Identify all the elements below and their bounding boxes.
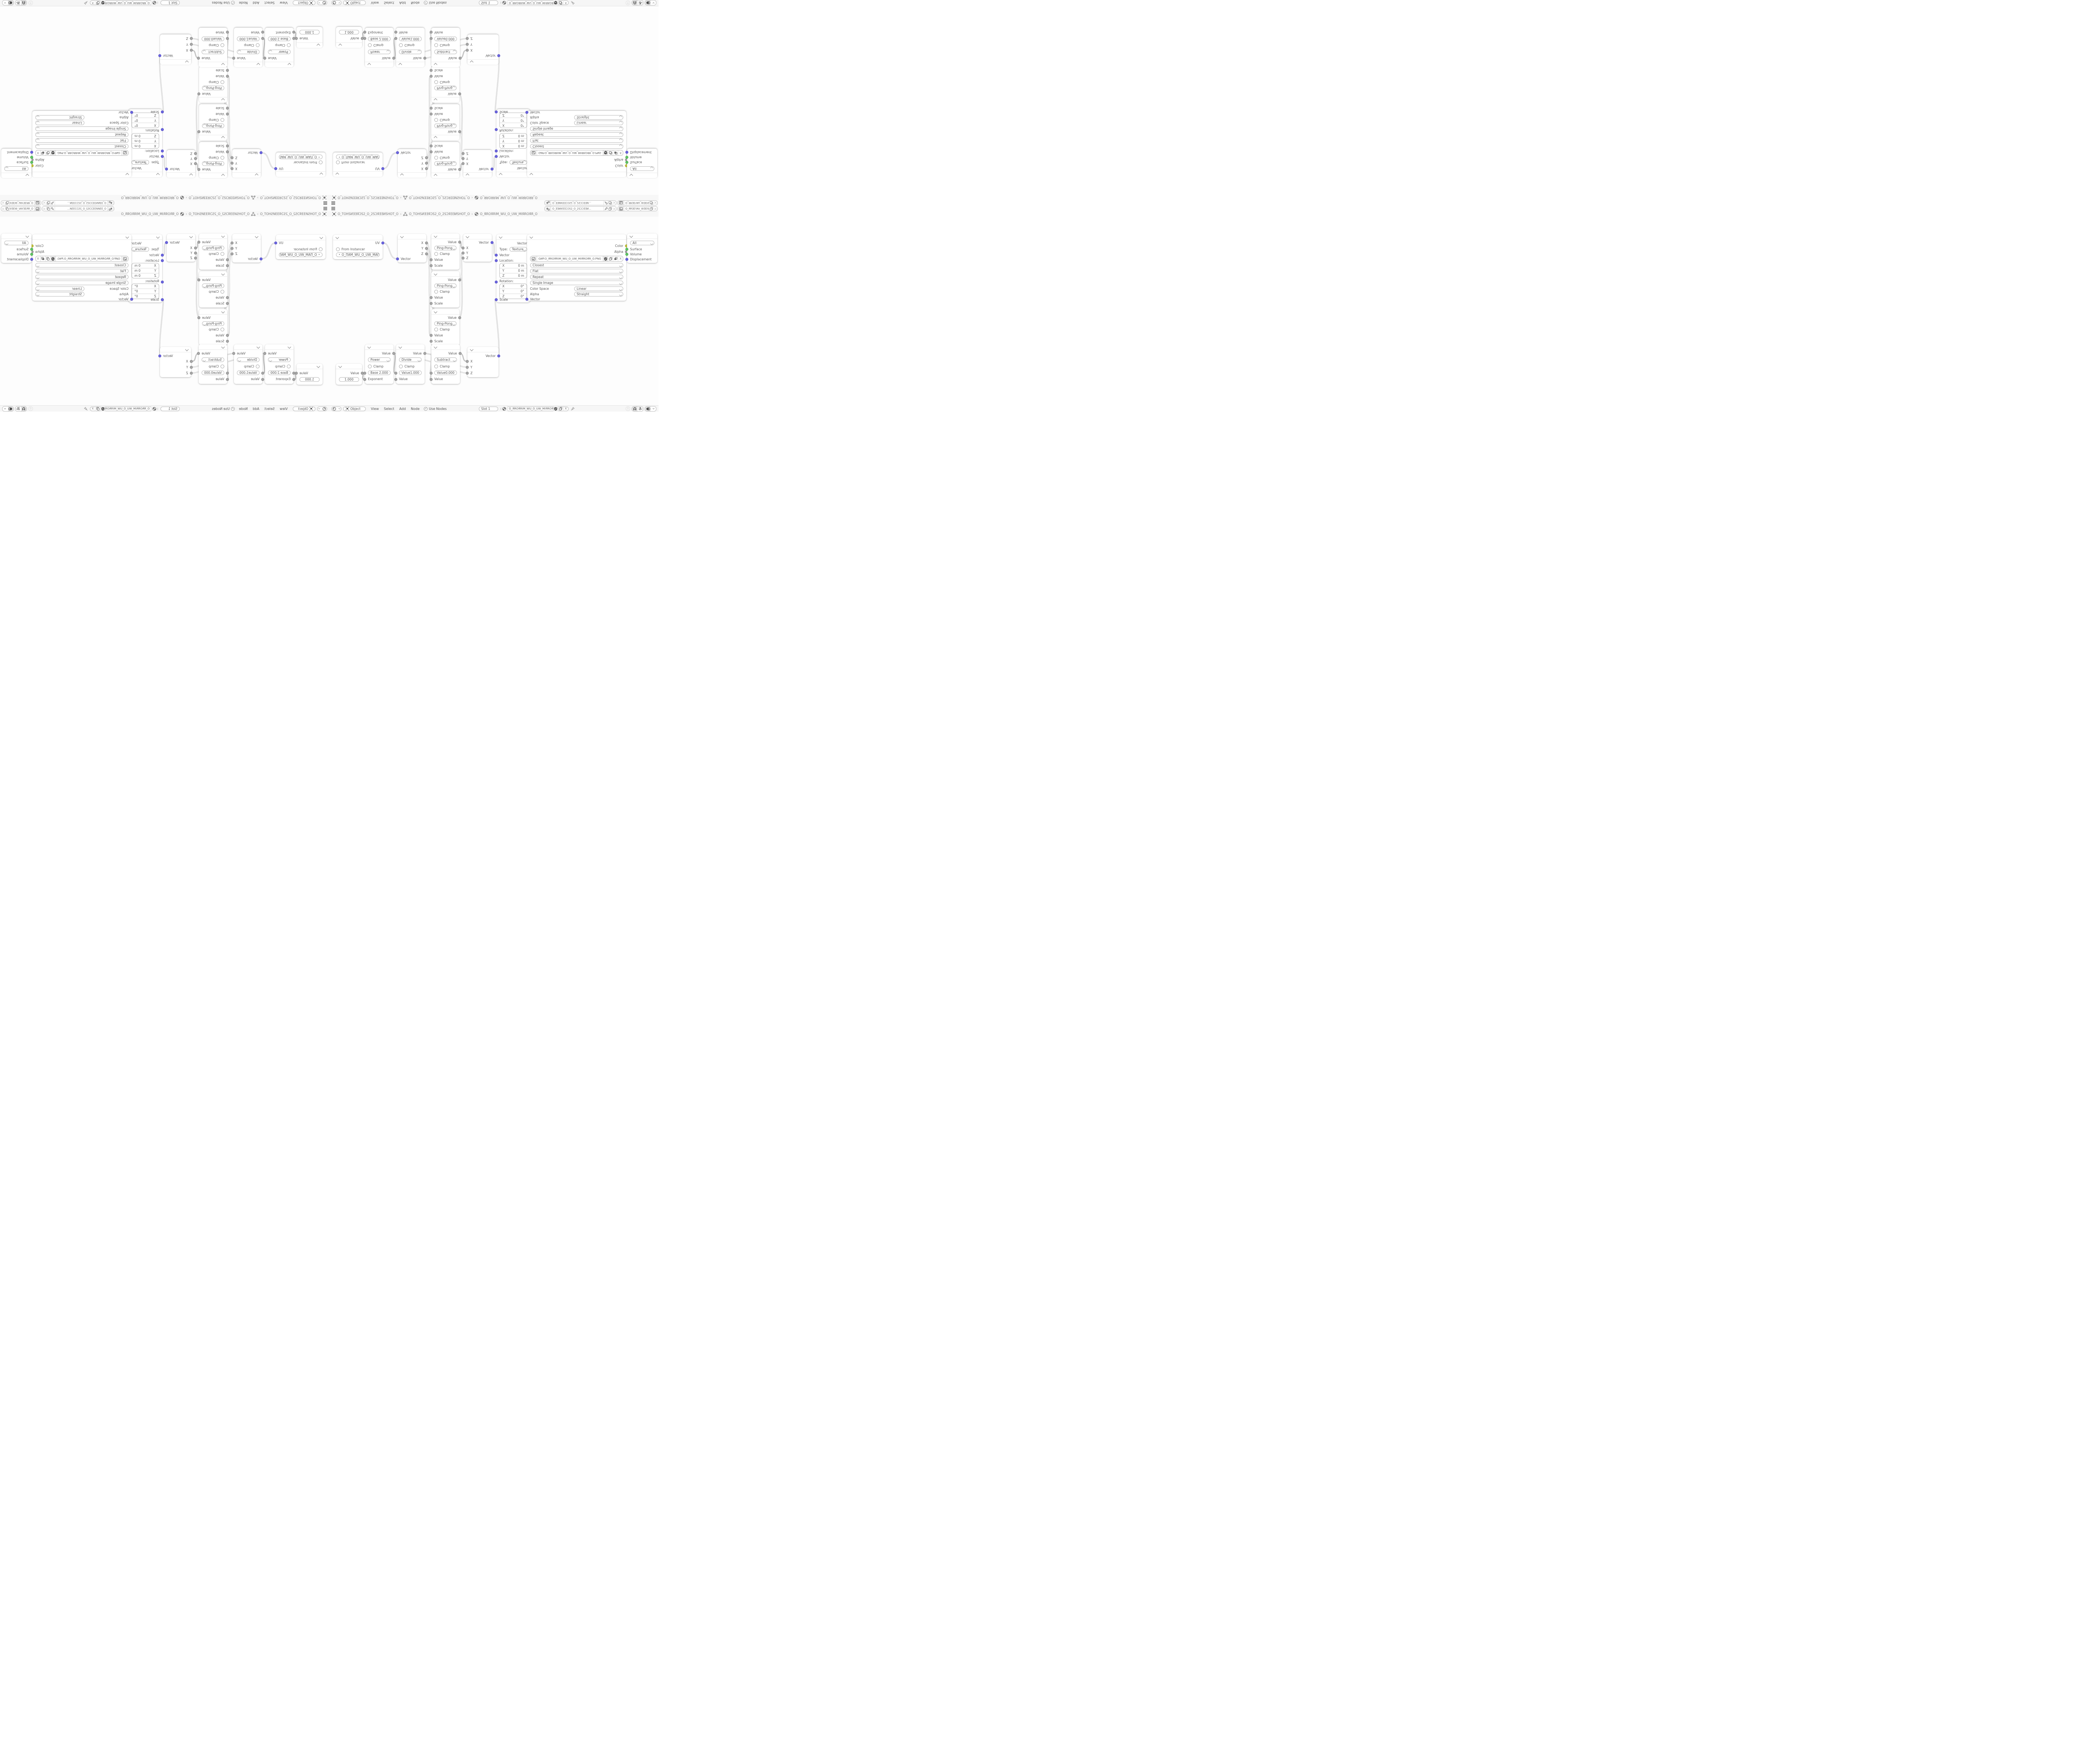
- view-layer-selector[interactable]: O_ЯRƎEYAV_WƎEIW_O_WIƎEW_VAYƎER_O: [1, 200, 41, 205]
- use-nodes-toggle[interactable]: ✓Use Nodes: [210, 1, 236, 5]
- vector-output-socket[interactable]: [158, 354, 161, 357]
- menu-select[interactable]: Select: [381, 407, 397, 411]
- operation-dropdown[interactable]: Power: [368, 50, 391, 54]
- menu-icon[interactable]: [331, 201, 336, 205]
- value-output-socket[interactable]: [263, 352, 266, 355]
- gizmo-arrow-icon[interactable]: [625, 406, 630, 411]
- image-icon[interactable]: [618, 201, 624, 205]
- base-input-socket[interactable]: [292, 372, 295, 375]
- vector-input-socket[interactable]: [161, 254, 164, 257]
- node-collapse-header[interactable]: [199, 234, 227, 239]
- location-fields[interactable]: X0 m Y0 m Z0 m: [131, 263, 159, 278]
- image-browse-icon[interactable]: [121, 150, 128, 155]
- image-texture-node[interactable]: Color Alpha GИP.O_ЯROЯRIM_WU_O_UW_MIЯROЯ…: [527, 111, 626, 177]
- node-canvas[interactable]: UV From Instancer •O_ПAM_WU_O_UW_MAП_OX …: [0, 6, 329, 195]
- location-input-socket[interactable]: [161, 259, 164, 262]
- header-image-datablock[interactable]: O_ЯROЯRIM_WU_O_UW_MIЯROЯR_O X: [90, 407, 158, 411]
- separate-xyz-node[interactable]: X Y Z Vector: [232, 234, 261, 262]
- close-icon[interactable]: [612, 201, 616, 205]
- view-layer-name-field[interactable]: O_ЯRƎEYAV_WƎEIW_O_WIƎEW_VAYƎER_O: [10, 202, 34, 205]
- clamp-checkbox[interactable]: [256, 43, 260, 47]
- rotation-y-field[interactable]: Y0°: [132, 289, 159, 294]
- unpack-icon[interactable]: [613, 150, 618, 155]
- operation-dropdown[interactable]: Divide: [399, 50, 422, 54]
- value-input-socket[interactable]: [430, 258, 433, 261]
- node-collapse-header[interactable]: [167, 172, 195, 178]
- fake-user-shield-icon[interactable]: [603, 150, 608, 155]
- view-layer-selector[interactable]: O_ЯRƎEYAV_WƎEIW_O_WIƎEW_VAYƎER_O: [617, 200, 658, 205]
- value-output-socket[interactable]: [197, 130, 200, 133]
- base-input-socket[interactable]: [292, 37, 295, 40]
- mapping-type-dropdown[interactable]: Texture: [509, 247, 527, 252]
- value-output-socket[interactable]: [197, 352, 200, 355]
- node-collapse-header[interactable]: [496, 172, 530, 177]
- node-collapse-header[interactable]: [527, 234, 626, 240]
- view-layer-name-field[interactable]: O_ЯRƎEYAV_WƎEIW_O_WIƎEW_VAYƎER_O: [624, 202, 649, 205]
- image-icon[interactable]: [34, 201, 41, 205]
- location-y-field[interactable]: Y0 m: [500, 139, 527, 144]
- value-input-socket[interactable]: [430, 334, 433, 337]
- value-input-socket[interactable]: [394, 372, 397, 375]
- rotation-fields[interactable]: X0° Y0° Z0°: [131, 283, 159, 299]
- vector-output-socket[interactable]: [497, 354, 500, 357]
- node-collapse-header[interactable]: [365, 62, 394, 67]
- node-canvas[interactable]: UV From Instancer •O_ПAM_WU_O_UW_MAП_OX …: [0, 217, 329, 406]
- material-output-node[interactable]: All Surface Volume Displacement: [1, 234, 31, 263]
- image-name[interactable]: GИP.O_ЯROЯRIM_WU_O_UW_MIЯROЯR_O.PNG: [537, 257, 603, 261]
- vector-input-socket[interactable]: [525, 111, 528, 114]
- value-output-socket[interactable]: [197, 278, 200, 281]
- scene-selector[interactable]: O_ƎƎИИƎƎƆƆS2_O_2SƆƆƎƎИ...: [42, 206, 114, 211]
- uv-map-field[interactable]: •O_ПAM_WU_O_UW_MAП_OX: [336, 252, 380, 257]
- projection-dropdown[interactable]: Flat: [530, 269, 623, 273]
- value-input-socket[interactable]: [261, 31, 264, 34]
- close-icon[interactable]: X: [563, 0, 568, 5]
- menu-node[interactable]: Node: [408, 407, 422, 411]
- node-collapse-header[interactable]: [199, 271, 227, 277]
- combine-xyz-node-top[interactable]: Vector X Y Z: [167, 234, 195, 262]
- fake-user-shield-icon[interactable]: [603, 256, 608, 261]
- color-space-dropdown[interactable]: Linear: [35, 286, 84, 291]
- node-collapse-header[interactable]: [527, 172, 626, 177]
- location-x-field[interactable]: X0 m: [132, 144, 159, 148]
- math-node-divide[interactable]: Value Divide Clamp Value1.000 Value: [396, 28, 425, 67]
- clamp-checkbox[interactable]: [368, 43, 372, 47]
- math-node-divide[interactable]: Value Divide Clamp Value1.000 Value: [234, 28, 262, 67]
- value-field[interactable]: Value0.000: [434, 37, 457, 41]
- unpack-icon[interactable]: [613, 256, 618, 261]
- image-datablock-field[interactable]: GИP.O_ЯROЯRIM_WU_O_UW_MIЯROЯR_O.PNG X: [530, 256, 623, 262]
- node-collapse-header[interactable]: [333, 171, 383, 177]
- node-collapse-header[interactable]: [627, 234, 657, 239]
- snapping-controls[interactable]: [15, 406, 27, 412]
- location-x-field[interactable]: X0 m: [132, 263, 159, 268]
- breadcrumb-mesh[interactable]: O_TOHSИƎƎЯƆS2_O_2SƆЯƎƎИSHOT_O: [189, 196, 249, 199]
- from-instancer-checkbox[interactable]: [319, 160, 323, 164]
- value-field[interactable]: Value0.000: [202, 37, 224, 41]
- math-node-divide[interactable]: Value Divide Clamp Value1.000 Value: [396, 344, 425, 384]
- image-browse-icon[interactable]: [121, 256, 128, 261]
- projection-dropdown[interactable]: Flat: [35, 269, 129, 273]
- mapping-node[interactable]: Vector Type:Texture Vector Location: X0 …: [129, 234, 162, 302]
- rotation-fields[interactable]: X0° Y0° Z0°: [499, 113, 527, 128]
- copy-icon[interactable]: [5, 201, 10, 205]
- magnet-icon[interactable]: [632, 407, 638, 411]
- image-browse-icon[interactable]: [501, 406, 508, 411]
- value-input-socket[interactable]: [226, 296, 229, 299]
- math-node-pingpong-3[interactable]: Value Ping-Pong Clamp Value Scale: [199, 66, 227, 102]
- copy-icon[interactable]: [46, 256, 51, 261]
- close-icon[interactable]: X: [36, 150, 41, 155]
- node-collapse-header[interactable]: [160, 59, 191, 65]
- node-collapse-header[interactable]: [199, 97, 227, 102]
- value-output-socket[interactable]: [458, 316, 461, 319]
- math-node-power[interactable]: Value Power Clamp Base2.000 Exponent: [265, 344, 294, 384]
- image-name[interactable]: GИP.O_ЯROЯRIM_WU_O_UW_MIЯROЯR_O.PNG: [56, 151, 121, 155]
- math-node-pingpong-3[interactable]: Value Ping-Pong Clamp Value Scale: [199, 309, 227, 345]
- vector-input-socket[interactable]: [396, 151, 399, 154]
- fake-user-shield-icon[interactable]: [553, 0, 558, 5]
- operation-dropdown[interactable]: Power: [368, 357, 391, 362]
- math-node-subtract[interactable]: Value Subtract Clamp Value0.000 Value: [199, 28, 227, 67]
- vector-output-socket[interactable]: [158, 54, 161, 57]
- alpha-mode-dropdown[interactable]: Straight: [574, 292, 623, 297]
- scene-icon[interactable]: [545, 201, 551, 205]
- node-collapse-header[interactable]: [431, 271, 459, 277]
- value-input-socket[interactable]: [394, 31, 397, 34]
- header-image-datablock[interactable]: O_ЯROЯRIM_WU_O_UW_MIЯROЯR_O X: [90, 1, 158, 5]
- breadcrumb-object[interactable]: O_TOHSИƎƎЯƆS2_O_2SƆЯƎƎИSHOT_O: [338, 212, 399, 216]
- value-output-socket[interactable]: [197, 168, 200, 171]
- pin-icon[interactable]: [571, 407, 575, 411]
- source-dropdown[interactable]: Single Image: [530, 126, 623, 131]
- rotation-fields[interactable]: X0° Y0° Z0°: [499, 283, 527, 299]
- value-output-socket[interactable]: [295, 372, 298, 375]
- location-z-field[interactable]: Z0 m: [132, 273, 159, 278]
- value-output-socket[interactable]: [423, 352, 426, 355]
- fake-user-shield-icon[interactable]: [100, 406, 105, 411]
- value-output-socket[interactable]: [197, 316, 200, 319]
- clamp-checkbox[interactable]: [220, 43, 224, 47]
- displacement-input-socket[interactable]: [30, 151, 33, 154]
- value-output-socket[interactable]: [458, 278, 461, 281]
- value-input-socket[interactable]: [430, 31, 433, 34]
- exponent-input-socket[interactable]: [363, 378, 366, 381]
- rotation-input-socket[interactable]: [495, 281, 498, 283]
- interpolation-dropdown[interactable]: Closest: [35, 144, 129, 149]
- z-input-socket[interactable]: [194, 257, 197, 260]
- scale-input-socket[interactable]: [226, 340, 229, 343]
- combine-xyz-node-bottom[interactable]: Vector X Y Z: [467, 347, 499, 377]
- scale-input-socket[interactable]: [226, 302, 229, 305]
- value-input-socket[interactable]: [226, 258, 229, 261]
- overlays-icon[interactable]: [8, 407, 13, 411]
- slot-dropdown[interactable]: Slot 1: [160, 407, 180, 411]
- math-node-pingpong-1[interactable]: Value Ping-Pong Clamp Value Scale: [431, 142, 459, 178]
- scene-selector[interactable]: O_ƎƎИИƎƎƆƆS2_O_2SƆƆƎƎИ...: [544, 206, 617, 211]
- image-datablock-field[interactable]: GИP.O_ЯROЯRIM_WU_O_UW_MIЯROЯR_O.PNG X: [35, 150, 129, 156]
- source-dropdown[interactable]: Single Image: [35, 281, 129, 285]
- pin-icon[interactable]: [84, 1, 88, 5]
- overlays-controls[interactable]: [2, 0, 14, 6]
- value-output-socket[interactable]: [458, 241, 461, 244]
- image-browse-icon[interactable]: [530, 256, 537, 261]
- operation-dropdown[interactable]: Subtract: [202, 50, 224, 54]
- value-field[interactable]: Value1.000: [237, 370, 260, 375]
- vector-input-socket[interactable]: [396, 257, 399, 260]
- rotation-x-field[interactable]: X0°: [500, 123, 527, 128]
- node-collapse-header[interactable]: [398, 172, 426, 178]
- vector-output-socket[interactable]: [491, 241, 493, 244]
- x-input-socket[interactable]: [466, 360, 469, 363]
- value-output-socket[interactable]: [263, 57, 266, 60]
- copy-icon[interactable]: [649, 207, 653, 211]
- math-node-pingpong-1[interactable]: Value Ping-Pong Clamp Value Scale: [431, 234, 459, 270]
- x-input-socket[interactable]: [466, 49, 469, 52]
- base-field[interactable]: Base2.000: [368, 370, 391, 375]
- uv-map-node[interactable]: UV From Instancer •O_ПAM_WU_O_UW_MAП_OX: [333, 152, 383, 177]
- value-input-socket[interactable]: [261, 378, 264, 381]
- overlays-dropdown[interactable]: [3, 407, 8, 411]
- menu-select[interactable]: Select: [262, 1, 277, 5]
- operation-dropdown[interactable]: Power: [268, 357, 291, 362]
- combine-xyz-node-top[interactable]: Vector X Y Z: [463, 234, 492, 262]
- x-output-socket[interactable]: [425, 167, 428, 170]
- node-collapse-header[interactable]: [467, 59, 499, 65]
- displacement-input-socket[interactable]: [625, 151, 628, 154]
- value-node[interactable]: Value 1.000: [336, 364, 362, 385]
- z-input-socket[interactable]: [466, 37, 469, 40]
- location-y-field[interactable]: Y0 m: [132, 139, 159, 144]
- value-output-socket[interactable]: [232, 57, 235, 60]
- fake-user-shield-icon[interactable]: [553, 406, 558, 411]
- operation-dropdown[interactable]: Ping-Pong: [434, 283, 457, 288]
- y-input-socket[interactable]: [462, 252, 465, 255]
- surface-input-socket[interactable]: [625, 248, 628, 251]
- uv-map-node[interactable]: UV From Instancer •O_ПAM_WU_O_UW_MAП_OX: [333, 235, 383, 259]
- x-input-socket[interactable]: [194, 162, 197, 165]
- node-collapse-header[interactable]: [234, 62, 262, 67]
- clamp-checkbox[interactable]: [434, 365, 438, 368]
- breadcrumb-material[interactable]: O_ЯROЯRIM_WU_O_UW_MIЯROЯR_O: [121, 212, 178, 216]
- image-texture-node[interactable]: Color Alpha GИP.O_ЯROЯRIM_WU_O_UW_MIЯROЯ…: [32, 111, 131, 177]
- close-icon[interactable]: [653, 207, 657, 211]
- math-node-power[interactable]: Value Power Clamp Base2.000 Exponent: [365, 28, 394, 67]
- surface-input-socket[interactable]: [30, 161, 33, 164]
- combine-xyz-node-bottom[interactable]: Vector X Y Z: [467, 34, 499, 65]
- uv-map-node[interactable]: UV From Instancer •O_ПAM_WU_O_UW_MAП_OX: [276, 235, 325, 259]
- rotation-x-field[interactable]: X0°: [132, 284, 159, 289]
- z-input-socket[interactable]: [190, 372, 193, 375]
- menu-select[interactable]: Select: [381, 1, 397, 5]
- breadcrumb-mesh[interactable]: O_TOHSИƎƎЯƆS2_O_2SƆЯƎƎИSHOT_O: [409, 212, 470, 216]
- image-browse-icon[interactable]: [151, 0, 157, 5]
- rotation-y-field[interactable]: Y0°: [500, 289, 527, 294]
- magnet-icon[interactable]: [632, 1, 638, 5]
- pin-icon[interactable]: [51, 201, 55, 205]
- x-output-socket[interactable]: [425, 241, 428, 244]
- node-collapse-header[interactable]: [265, 344, 294, 350]
- value-node[interactable]: Value 1.000: [336, 27, 362, 48]
- value-input-socket[interactable]: [394, 37, 397, 40]
- clamp-checkbox[interactable]: [434, 156, 438, 160]
- image-name[interactable]: O_ЯROЯRIM_WU_O_UW_MIЯROЯR_O: [105, 407, 151, 410]
- image-name[interactable]: O_ЯROЯRIM_WU_O_UW_MIЯROЯR_O: [105, 1, 151, 5]
- breadcrumb-material[interactable]: O_ЯROЯRIM_WU_O_UW_MIЯROЯR_O: [480, 196, 538, 199]
- operation-dropdown[interactable]: Ping-Pong: [434, 123, 457, 128]
- node-collapse-header[interactable]: [232, 234, 261, 239]
- scene-name-field[interactable]: O_ƎƎИИƎƎƆƆS2_O_2SƆƆƎƎИ...: [55, 202, 108, 205]
- value-output-socket[interactable]: [458, 92, 461, 95]
- value-output-socket[interactable]: [197, 241, 200, 244]
- operation-dropdown[interactable]: Subtract: [434, 50, 457, 54]
- value-output-socket[interactable]: [197, 92, 200, 95]
- menu-view[interactable]: View: [277, 407, 290, 411]
- close-icon[interactable]: X: [563, 406, 568, 411]
- z-input-socket[interactable]: [462, 152, 465, 155]
- vector-input-socket[interactable]: [260, 257, 262, 260]
- combine-xyz-node-top[interactable]: Vector X Y Z: [463, 150, 492, 178]
- editor-type-dropdown[interactable]: [331, 1, 341, 5]
- node-collapse-header[interactable]: [160, 347, 191, 352]
- node-canvas[interactable]: UV From Instancer •O_ПAM_WU_O_UW_MAП_OX …: [329, 6, 659, 195]
- interpolation-dropdown[interactable]: Closest: [530, 144, 623, 149]
- y-output-socket[interactable]: [231, 162, 234, 165]
- value-field[interactable]: Value0.000: [434, 370, 457, 375]
- menu-add[interactable]: Add: [397, 407, 409, 411]
- shading-mode-dropdown[interactable]: Object: [293, 407, 315, 411]
- math-node-pingpong-1[interactable]: Value Ping-Pong Clamp Value Scale: [199, 142, 227, 178]
- value-input-socket[interactable]: [226, 113, 229, 115]
- vector-input-socket[interactable]: [495, 155, 498, 158]
- node-collapse-header[interactable]: [463, 234, 492, 239]
- image-datablock-field[interactable]: GИP.O_ЯROЯRIM_WU_O_UW_MIЯROЯR_O.PNG X: [35, 256, 129, 262]
- image-name[interactable]: GИP.O_ЯROЯRIM_WU_O_UW_MIЯROЯR_O.PNG: [537, 151, 603, 155]
- pin-icon[interactable]: [84, 407, 88, 411]
- copy-icon[interactable]: [608, 201, 612, 205]
- y-input-socket[interactable]: [466, 366, 469, 369]
- value-input-socket[interactable]: [226, 334, 229, 337]
- operation-dropdown[interactable]: Subtract: [434, 357, 457, 362]
- math-node-subtract[interactable]: Value Subtract Clamp Value0.000 Value: [431, 28, 460, 67]
- x-input-socket[interactable]: [462, 247, 465, 249]
- math-node-pingpong-3[interactable]: Value Ping-Pong Clamp Value Scale: [431, 309, 459, 345]
- gizmo-arrow-icon[interactable]: [28, 406, 33, 411]
- mapping-node[interactable]: Vector Type:Texture Vector Location: X0 …: [496, 109, 530, 177]
- operation-dropdown[interactable]: Ping-Pong: [202, 123, 224, 128]
- y-input-socket[interactable]: [190, 43, 193, 46]
- separate-xyz-node[interactable]: X Y Z Vector: [232, 149, 261, 178]
- scale-input-socket[interactable]: [430, 69, 433, 72]
- node-collapse-header[interactable]: [431, 309, 459, 315]
- value-input-socket[interactable]: [430, 372, 433, 375]
- location-y-field[interactable]: Y0 m: [132, 268, 159, 273]
- pin-icon[interactable]: [571, 1, 575, 5]
- clamp-checkbox[interactable]: [220, 365, 224, 368]
- menu-view[interactable]: View: [368, 407, 381, 411]
- use-nodes-toggle[interactable]: ✓Use Nodes: [422, 1, 449, 5]
- uv-output-socket[interactable]: [381, 167, 384, 170]
- node-collapse-header[interactable]: [463, 172, 492, 178]
- node-collapse-header[interactable]: [199, 173, 227, 178]
- node-collapse-header[interactable]: [32, 234, 131, 240]
- value-input-socket[interactable]: [226, 378, 229, 381]
- y-output-socket[interactable]: [425, 162, 428, 165]
- x-output-socket[interactable]: [231, 241, 234, 244]
- scene-icon[interactable]: [545, 207, 551, 211]
- overlays-icon[interactable]: [645, 1, 651, 5]
- node-collapse-header[interactable]: [336, 42, 362, 48]
- clamp-checkbox[interactable]: [287, 43, 291, 47]
- image-browse-icon[interactable]: [501, 0, 508, 5]
- copy-icon[interactable]: [46, 150, 51, 155]
- volume-input-socket[interactable]: [30, 253, 33, 256]
- extension-dropdown[interactable]: Repeat: [530, 275, 623, 279]
- header-image-datablock[interactable]: O_ЯROЯRIM_WU_O_UW_MIЯROЯR_O X: [501, 1, 569, 5]
- scene-selector[interactable]: O_ƎƎИИƎƎƆƆS2_O_2SƆƆƎƎИ...: [544, 200, 617, 205]
- clamp-checkbox[interactable]: [434, 80, 438, 84]
- rotation-input-socket[interactable]: [161, 281, 164, 283]
- exponent-input-socket[interactable]: [363, 31, 366, 34]
- value-input-socket[interactable]: [261, 37, 264, 40]
- snapping-controls[interactable]: [632, 0, 643, 6]
- value-output-socket[interactable]: [423, 57, 426, 60]
- location-fields[interactable]: X0 m Y0 m Z0 m: [499, 263, 527, 278]
- y-input-socket[interactable]: [462, 157, 465, 160]
- value-input-socket[interactable]: [226, 75, 229, 78]
- y-output-socket[interactable]: [425, 247, 428, 250]
- alpha-mode-dropdown[interactable]: Straight: [35, 115, 84, 120]
- y-input-socket[interactable]: [194, 252, 197, 255]
- combine-xyz-node-top[interactable]: Vector X Y Z: [167, 150, 195, 178]
- node-canvas[interactable]: UV From Instancer •O_ПAM_WU_O_UW_MAП_OX …: [329, 217, 659, 406]
- node-collapse-header[interactable]: [265, 62, 294, 67]
- y-input-socket[interactable]: [194, 157, 197, 160]
- use-nodes-toggle[interactable]: ✓Use Nodes: [210, 407, 236, 411]
- fake-user-shield-icon[interactable]: [51, 256, 56, 261]
- view-layer-selector[interactable]: O_ЯRƎEYAV_WƎEIW_O_WIƎEW_VAYƎER_O: [1, 206, 41, 211]
- output-target-dropdown[interactable]: All: [4, 166, 29, 171]
- uv-output-socket[interactable]: [274, 167, 277, 170]
- close-icon[interactable]: [653, 201, 657, 205]
- vector-input-socket[interactable]: [161, 155, 164, 158]
- node-collapse-header[interactable]: [467, 347, 499, 352]
- uv-map-field[interactable]: •O_ПAM_WU_O_UW_MAП_OX: [279, 252, 323, 257]
- math-node-pingpong-3[interactable]: Value Ping-Pong Clamp Value Scale: [431, 66, 459, 102]
- snap-target-dropdown[interactable]: [16, 1, 21, 5]
- breadcrumb-object[interactable]: O_TOHSИƎƎЯƆS2_O_2SƆЯƎƎИSHOT_O: [260, 196, 321, 199]
- overlays-dropdown[interactable]: [651, 407, 656, 411]
- vector-input-socket[interactable]: [260, 151, 262, 154]
- location-x-field[interactable]: X0 m: [500, 144, 527, 148]
- displacement-input-socket[interactable]: [30, 258, 33, 261]
- value-input-socket[interactable]: [430, 150, 433, 153]
- node-collapse-header[interactable]: [32, 172, 131, 177]
- close-icon[interactable]: [1, 207, 5, 211]
- scene-name-field[interactable]: O_ƎƎИИƎƎƆƆS2_O_2SƆƆƎƎИ...: [55, 207, 108, 210]
- menu-node[interactable]: Node: [236, 1, 250, 5]
- node-collapse-header[interactable]: [431, 234, 459, 239]
- extension-dropdown[interactable]: Repeat: [35, 132, 129, 137]
- vector-output-socket[interactable]: [165, 168, 168, 171]
- location-z-field[interactable]: Z0 m: [500, 273, 527, 278]
- operation-dropdown[interactable]: Ping-Pong: [202, 283, 224, 288]
- menu-add[interactable]: Add: [250, 1, 262, 5]
- clamp-checkbox[interactable]: [220, 252, 224, 256]
- mapping-node[interactable]: Vector Type:Texture Vector Location: X0 …: [496, 234, 530, 302]
- node-collapse-header[interactable]: [232, 172, 261, 178]
- math-node-subtract[interactable]: Value Subtract Clamp Value0.000 Value: [199, 344, 227, 384]
